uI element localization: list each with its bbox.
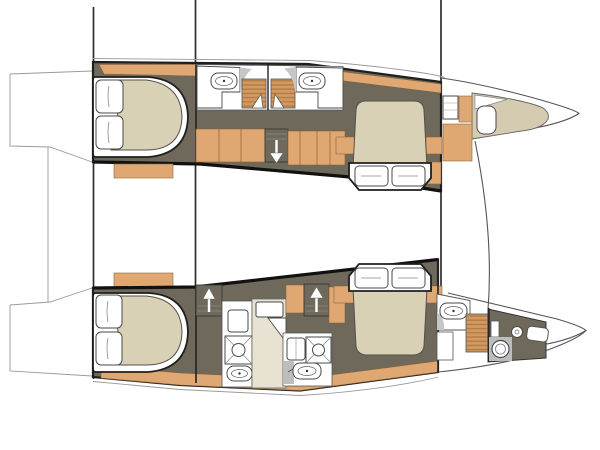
port-cabinet-row — [196, 129, 345, 165]
pillow — [96, 116, 123, 149]
starboard-aft-cabin — [93, 293, 188, 372]
head-cabinet — [437, 332, 453, 360]
forepeak-steps — [443, 96, 458, 119]
toilet-icon — [492, 341, 509, 358]
cabinet — [196, 129, 265, 162]
bed-mattress — [353, 288, 427, 355]
pillow — [96, 295, 122, 328]
starboard-stairs-aft — [196, 285, 222, 316]
toilet-fixture — [228, 310, 248, 332]
pillow — [256, 302, 283, 317]
bow-seat — [526, 326, 549, 343]
starboard-bathroom-forward — [283, 333, 332, 386]
shower-drain — [232, 344, 245, 357]
bedside-locker — [426, 137, 442, 154]
port-bathrooms — [197, 65, 343, 111]
door-leaf — [491, 321, 499, 337]
port-transom-outline — [10, 71, 92, 162]
starboard-bathroom-aft — [222, 301, 252, 387]
starboard-single-berth — [252, 299, 286, 388]
floorplan-canvas — [0, 0, 600, 450]
faucet-dot — [306, 370, 308, 372]
forepeak-locker-large — [443, 124, 472, 161]
shower-floor-patch — [284, 361, 294, 384]
faucet-dot — [223, 80, 225, 82]
bow-seat-hatch-icon — [526, 326, 549, 343]
head-sink-icon — [512, 327, 523, 338]
shower-grate-icon — [466, 314, 488, 352]
transom-outlines — [10, 71, 92, 376]
faucet-dot — [452, 310, 454, 312]
cabinet — [286, 285, 304, 313]
catamaran-floorplan — [0, 0, 600, 450]
faucet-dot — [311, 80, 313, 82]
pillow — [96, 80, 123, 113]
bedside-locker — [336, 137, 356, 154]
starboard-transom-outline — [10, 288, 92, 376]
shower-drain — [313, 344, 325, 356]
transom-step — [114, 273, 173, 287]
headboard-shelf — [99, 65, 196, 77]
foredeck-inner-edge — [475, 141, 489, 310]
faucet-dot — [238, 372, 240, 374]
bow-hatch-icon — [477, 106, 496, 134]
bed-mattress — [353, 101, 427, 168]
port-forepeak — [441, 78, 579, 161]
forepeak-locker-small — [459, 96, 472, 122]
transom-step — [114, 164, 173, 178]
pillow — [96, 332, 122, 365]
